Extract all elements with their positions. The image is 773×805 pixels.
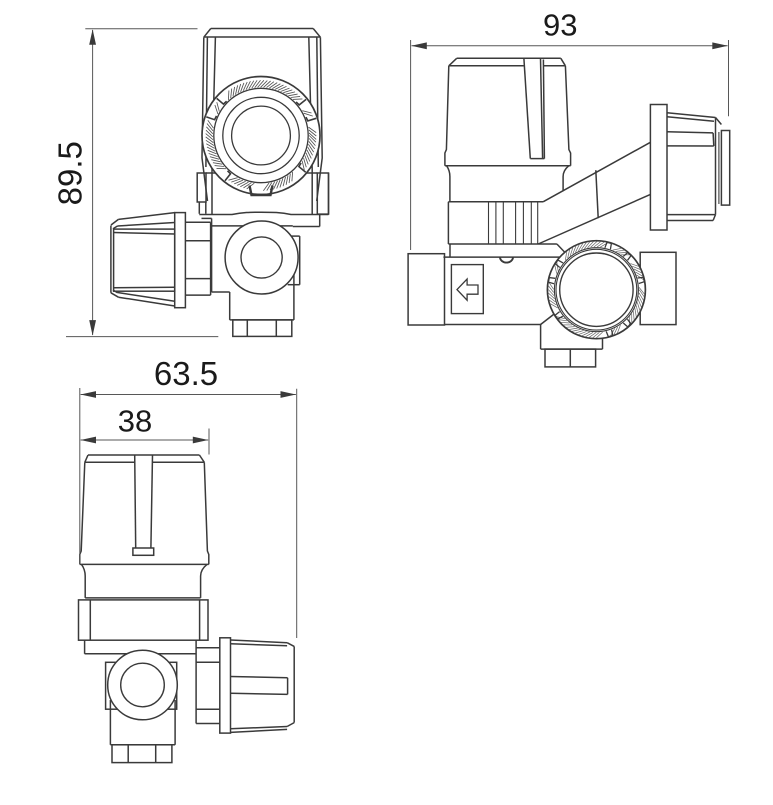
svg-text:63.5: 63.5 [154,355,218,392]
svg-text:38: 38 [118,404,152,439]
svg-text:93: 93 [543,8,577,43]
svg-text:89.5: 89.5 [52,141,89,205]
